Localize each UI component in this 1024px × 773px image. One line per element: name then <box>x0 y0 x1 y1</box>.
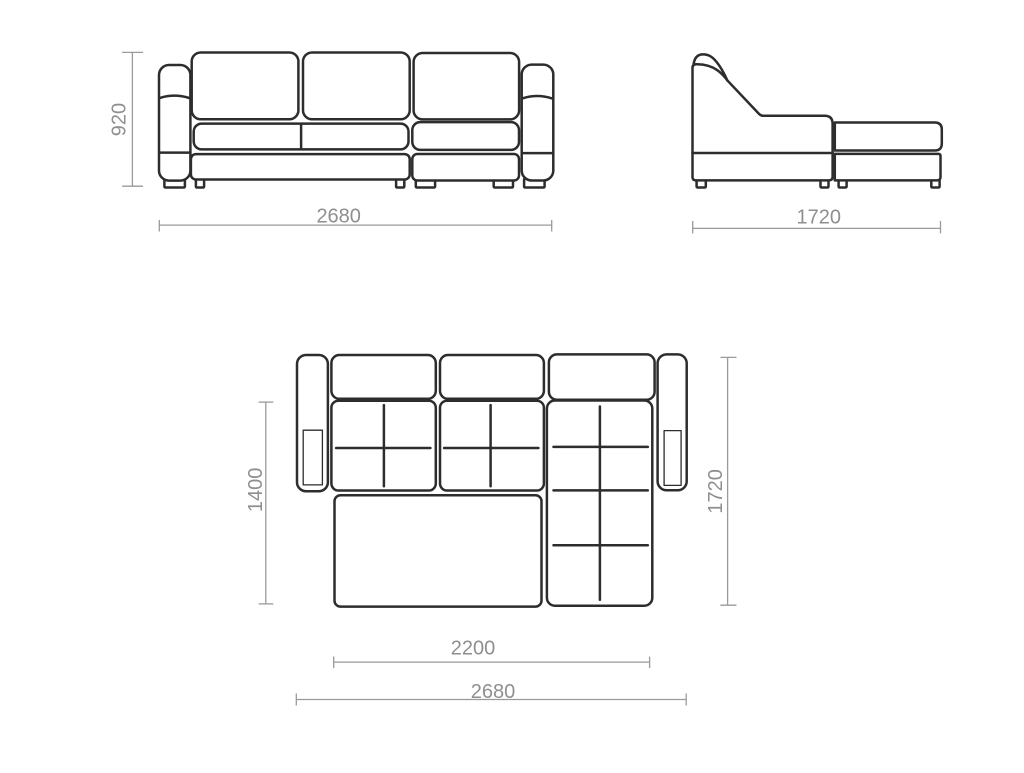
svg-text:920: 920 <box>109 103 131 136</box>
svg-text:1720: 1720 <box>705 469 727 514</box>
svg-text:1720: 1720 <box>797 207 842 229</box>
svg-text:2200: 2200 <box>451 638 496 660</box>
svg-text:2680: 2680 <box>316 206 361 228</box>
svg-text:1400: 1400 <box>245 468 267 513</box>
svg-text:2680: 2680 <box>471 681 516 703</box>
